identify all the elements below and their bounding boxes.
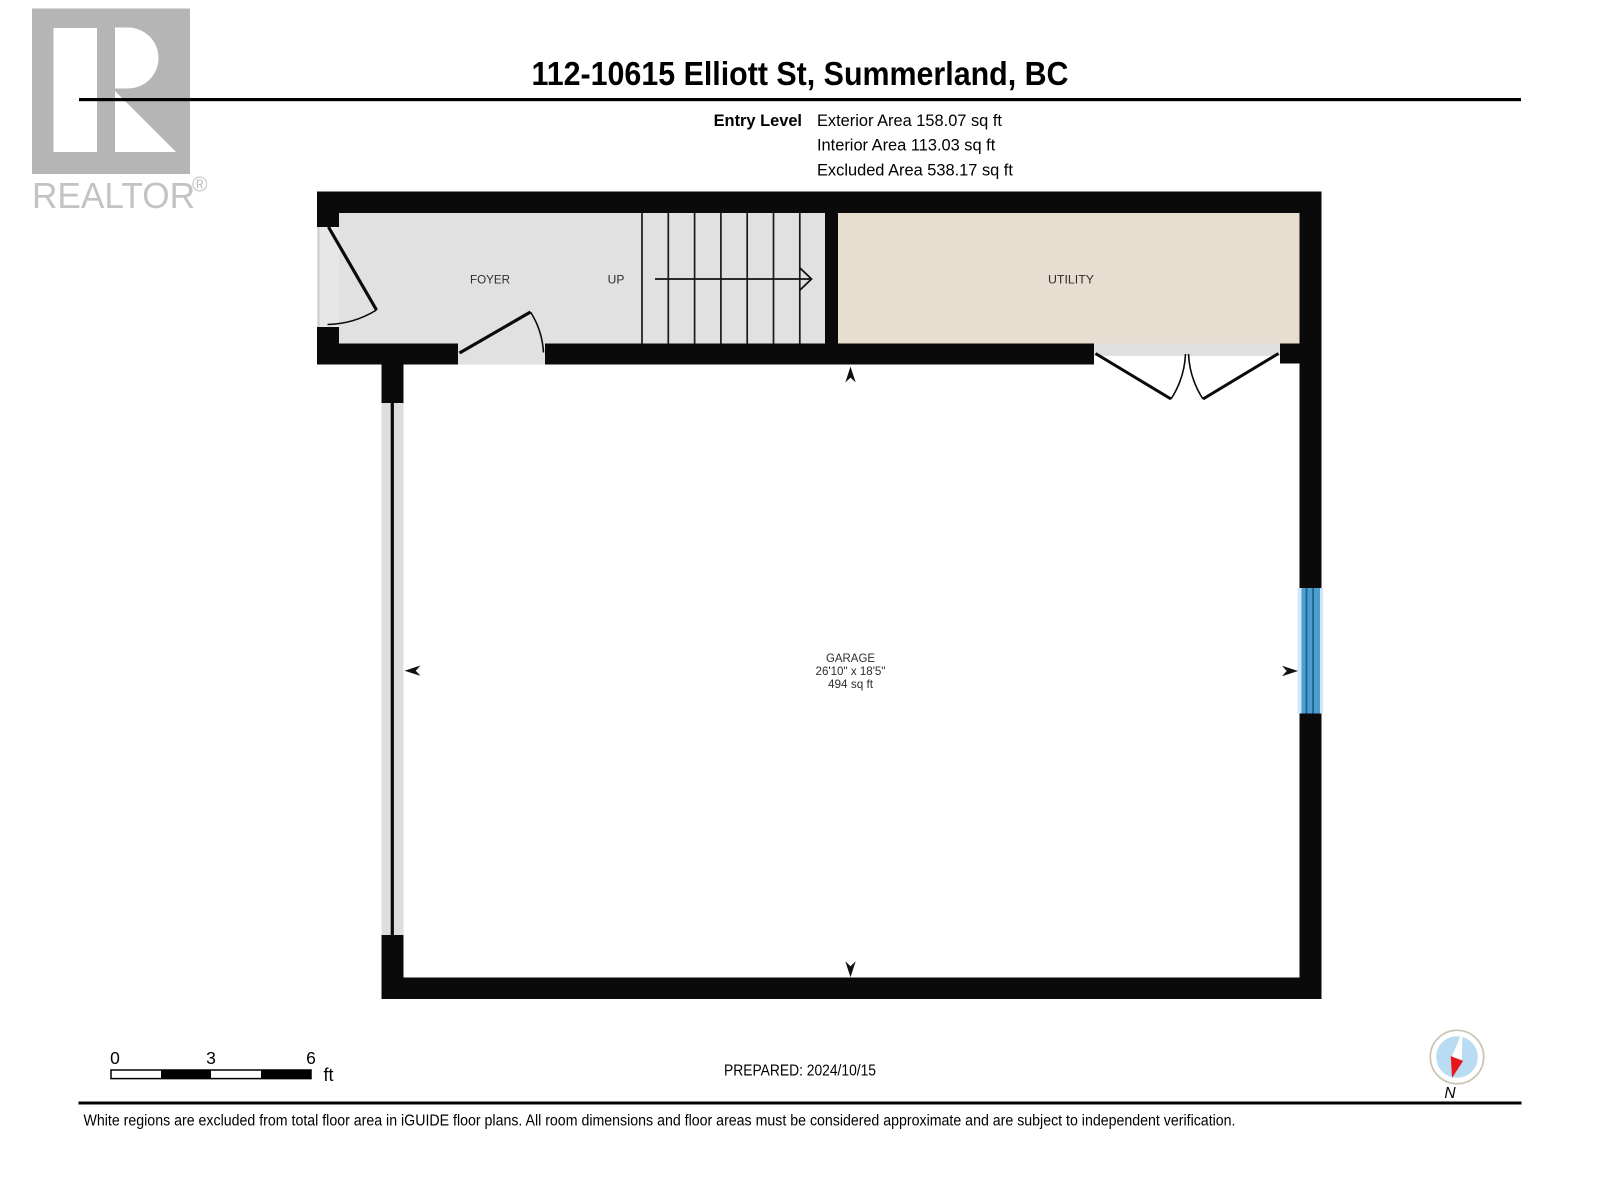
svg-text:N: N — [1444, 1085, 1456, 1102]
svg-text:PREPARED: 2024/10/15: PREPARED: 2024/10/15 — [724, 1063, 876, 1080]
svg-text:®: ® — [192, 174, 208, 197]
svg-text:494 sq ft: 494 sq ft — [828, 677, 874, 691]
svg-text:UTILITY: UTILITY — [1048, 273, 1094, 287]
svg-text:3: 3 — [206, 1048, 216, 1068]
svg-text:ft: ft — [324, 1065, 334, 1085]
svg-text:FOYER: FOYER — [470, 273, 510, 287]
svg-text:White regions are excluded fro: White regions are excluded from total fl… — [84, 1113, 1236, 1130]
svg-text:0: 0 — [110, 1048, 120, 1068]
svg-text:Interior Area 113.03 sq ft: Interior Area 113.03 sq ft — [817, 137, 996, 155]
svg-text:Exterior Area 158.07 sq ft: Exterior Area 158.07 sq ft — [817, 112, 1002, 130]
svg-text:REALTOR: REALTOR — [32, 175, 195, 216]
svg-text:6: 6 — [306, 1048, 316, 1068]
svg-text:Excluded Area 538.17 sq ft: Excluded Area 538.17 sq ft — [817, 162, 1013, 180]
svg-text:GARAGE: GARAGE — [826, 651, 875, 665]
svg-text:UP: UP — [608, 273, 625, 287]
svg-text:112-10615 Elliott St, Summerla: 112-10615 Elliott St, Summerland, BC — [532, 55, 1069, 92]
svg-text:Entry Level: Entry Level — [714, 112, 802, 130]
